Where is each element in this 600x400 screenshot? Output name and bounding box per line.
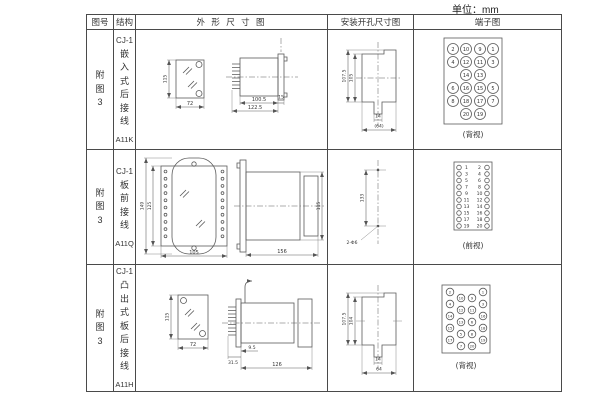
hatch-mark [180,190,189,198]
terminal-drawing-rear-a11k: 2109141211314136161558181772019 (背视) [414,30,559,148]
header-outline: 外 形 尺 寸 图 [136,15,328,30]
svg-text:11: 11 [477,60,483,66]
dim-height: 115 [165,313,171,322]
svg-text:19: 19 [464,224,470,230]
svg-text:19: 19 [477,112,483,118]
view-label: (背视) [456,360,477,370]
svg-text:2: 2 [478,165,481,171]
outline-drawing-a11h: 115 72 9.5 31.5 [136,265,326,389]
header-mounting: 安装开孔尺寸图 [328,15,414,30]
fig-no-row1: 附图3 [96,69,105,110]
front-view: 115 72 [163,60,205,109]
dim-width: 72 [190,342,196,348]
terminal-strip-right [221,170,224,238]
dim-flange: 15 [278,95,284,101]
model-label-row3: CJ-1 [116,267,133,276]
terminal-grid: 2109141211314136161558181772019 [448,44,499,120]
fig-no-cell-row2: 附图3 [87,150,114,265]
svg-text:14: 14 [477,204,483,210]
fig-no-cell-row1: 附图3 [87,30,114,150]
model-label-row1: CJ-1 [116,36,133,45]
svg-text:18: 18 [481,325,486,330]
header-terminal: 端子图 [414,15,561,30]
structure-cell-row2: CJ-1 板前接线 A11Q [114,150,136,265]
hatch-mark [188,81,197,89]
mounting-cell-row2: 133 2-Φ6 [328,150,414,265]
hatch-mark [185,309,194,317]
svg-text:14: 14 [463,73,469,79]
dim-outer-height: 107.5 [342,69,348,82]
header-structure: 结构 [114,15,136,30]
svg-text:18: 18 [477,217,483,223]
dim-length: 126 [272,362,282,368]
dim-outer-height: 107.5 [342,312,348,325]
screw-hole [181,298,187,304]
terminal-drawing-front-a11q: 135791113151719 2468101214161820 (前视) [414,150,559,263]
outline-cell-row3: 115 72 9.5 31.5 [136,265,328,391]
header-fig-no: 图号 [87,15,114,30]
dim-width: 72 [187,101,193,107]
svg-text:4: 4 [451,60,454,66]
svg-text:4: 4 [478,172,481,178]
svg-text:14: 14 [448,313,453,318]
panel-cutout [362,293,396,357]
screw-hole [196,91,202,97]
svg-text:15: 15 [464,211,470,217]
mounting-drawing-a11q: 133 2-Φ6 [328,150,412,263]
svg-text:18: 18 [463,99,469,105]
structure-desc-row1: 嵌入式后接线 [120,48,129,129]
dim-outer-width: (64) [374,124,383,130]
svg-text:15: 15 [448,325,453,330]
svg-text:3: 3 [465,172,468,178]
svg-text:8: 8 [478,185,481,191]
fig-no-cell-row3: 附图3 [87,265,114,391]
svg-text:17: 17 [448,337,453,342]
svg-text:11: 11 [464,198,470,204]
mounting-drawing-a11k: 107.5 105 14 (64) [328,30,412,148]
dim-offset: 9.5 [248,345,255,351]
hatch-mark [191,323,200,331]
front-view: 115 72 [165,295,209,350]
svg-text:5: 5 [465,178,468,184]
svg-text:1: 1 [482,289,485,294]
svg-text:17: 17 [477,99,483,105]
structure-cell-row1: CJ-1 嵌入式后接线 A11K [114,30,136,150]
panel-cutout [362,50,396,114]
side-view: 156 115 [234,160,324,257]
dim-side-height: 115 [316,202,322,211]
mounting-drawing-a11h: 107.5 104 14 64 [328,265,412,389]
svg-text:20: 20 [470,343,475,348]
svg-text:9: 9 [471,295,474,300]
screw-hole [196,62,202,68]
svg-text:8: 8 [471,331,474,336]
svg-text:6: 6 [478,178,481,184]
dim-outer-height: 149 [140,202,146,211]
outline-cell-row2: 149 125 105 156 [136,150,328,265]
fig-no-row3: 附图3 [96,308,105,349]
svg-text:9: 9 [465,191,468,197]
outline-drawing-a11k: 115 72 100.5 15 [136,30,326,148]
svg-text:10: 10 [459,295,464,300]
svg-text:6: 6 [451,86,454,92]
svg-text:2: 2 [449,289,452,294]
terminal-drawing-rear-a11h: 2109141211314136161558181772019 (背视) [414,265,559,389]
latch-hook [245,281,252,303]
terminal-cell-row3: 2109141211314136161558181772019 (背视) [414,265,561,391]
model-label-row2: CJ-1 [116,167,133,176]
svg-text:20: 20 [463,112,469,118]
svg-text:17: 17 [464,217,470,223]
structure-desc-row3: 凸出式板后接线 [120,279,129,374]
structure-code-row3: A11H [115,380,133,389]
dim-pins: 31.5 [228,360,238,366]
front-view: 149 125 105 [140,158,228,258]
svg-text:15: 15 [477,86,483,92]
side-view: 9.5 31.5 126 [222,281,320,370]
svg-text:8: 8 [451,99,454,105]
svg-text:20: 20 [477,224,483,230]
dim-outer-width: 64 [376,367,382,373]
terminal-column-right: 2468101214161820 [477,165,490,230]
spec-table: 图号 结构 外 形 尺 寸 图 安装开孔尺寸图 端子图 附图3 CJ-1 嵌入式… [86,14,562,392]
svg-text:1: 1 [465,165,468,171]
mounting-cell-row3: 107.5 104 14 64 [328,265,414,391]
hole-spec-label: 2-Φ6 [347,240,358,246]
svg-text:5: 5 [460,331,463,336]
svg-text:12: 12 [463,60,469,66]
terminal-strip-left [164,170,167,238]
side-view: 100.5 15 122.5 [226,38,298,113]
terminal-grid: 2109141211314136161558181772019 [446,288,487,350]
dim-inner-height: 125 [147,202,153,211]
structure-desc-row2: 板前接线 [120,179,129,233]
svg-text:10: 10 [463,47,469,53]
mounting-hole [377,169,380,172]
terminal-column-left: 135791113151719 [457,165,470,230]
structure-code-row2: A11Q [115,239,134,248]
svg-text:13: 13 [464,204,470,210]
screw-hole [200,331,206,337]
svg-text:2: 2 [451,47,454,53]
svg-text:16: 16 [481,313,486,318]
svg-text:16: 16 [477,211,483,217]
svg-text:1: 1 [491,47,494,53]
screw-hole [192,162,196,166]
svg-text:11: 11 [470,307,475,312]
svg-text:3: 3 [482,301,485,306]
dim-inner-height: 105 [349,74,355,83]
svg-text:12: 12 [477,198,483,204]
terminal-cell-row1: 2109141211314136161558181772019 (背视) [414,30,561,150]
svg-text:13: 13 [477,73,483,79]
view-label: (背视) [463,129,484,139]
dim-total-length: 122.5 [248,105,262,111]
svg-text:4: 4 [449,301,452,306]
terminal-cell-row2: 135791113151719 2468101214161820 (前视) [414,150,561,265]
dim-width: 105 [189,250,199,256]
svg-text:19: 19 [481,337,486,342]
svg-text:6: 6 [471,319,474,324]
terminal-pins [228,307,236,335]
dim-slot-width: 14 [375,114,381,120]
svg-text:13: 13 [459,319,464,324]
svg-text:9: 9 [478,47,481,53]
mounting-cell-row1: 107.5 105 14 (64) [328,30,414,150]
structure-cell-row3: CJ-1 凸出式板后接线 A11H [114,265,136,391]
svg-text:12: 12 [459,307,464,312]
outline-drawing-a11q: 149 125 105 156 [136,150,326,263]
dim-height: 115 [163,75,169,84]
hatch-mark [183,67,192,75]
dim-inner-height: 104 [349,317,355,326]
svg-text:3: 3 [491,60,494,66]
structure-code-row1: A11K [116,135,134,144]
dim-body-length: 100.5 [252,97,266,103]
view-label: (前视) [463,240,484,250]
svg-text:10: 10 [477,191,483,197]
terminal-pins [232,64,240,89]
dim-length: 156 [277,249,287,255]
svg-text:16: 16 [463,86,469,92]
outline-cell-row1: 115 72 100.5 15 [136,30,328,150]
svg-text:7: 7 [460,343,463,348]
svg-text:5: 5 [491,86,494,92]
dim-slot-width: 14 [375,357,381,363]
dim-hole-pitch: 133 [360,194,366,203]
hatch-mark [196,220,205,228]
fig-no-row2: 附图3 [96,187,105,228]
svg-text:7: 7 [465,185,468,191]
svg-text:7: 7 [491,99,494,105]
